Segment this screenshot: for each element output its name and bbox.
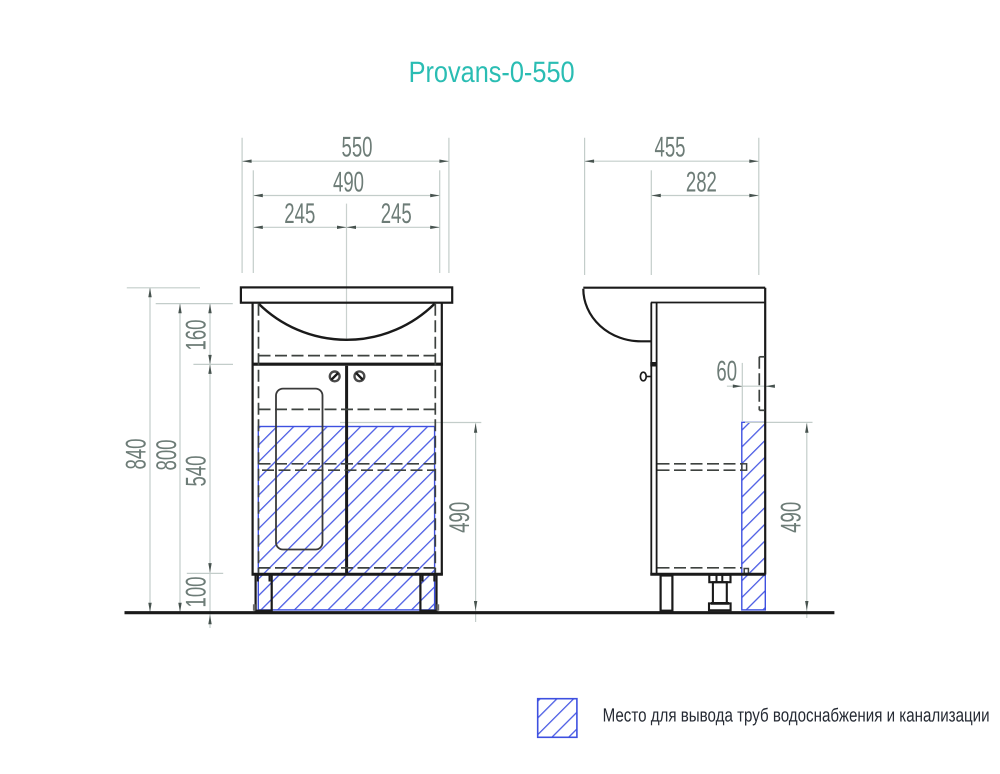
svg-text:245: 245	[284, 198, 315, 230]
svg-text:282: 282	[686, 167, 717, 199]
svg-text:800: 800	[151, 440, 183, 471]
svg-text:490: 490	[444, 502, 476, 533]
svg-text:160: 160	[181, 320, 213, 351]
svg-text:245: 245	[381, 198, 412, 230]
svg-text:100: 100	[181, 577, 213, 608]
svg-text:Место для вывода труб водоснаб: Место для вывода труб водоснабжения и ка…	[603, 706, 990, 727]
svg-text:490: 490	[333, 167, 364, 199]
svg-text:Provans-0-550: Provans-0-550	[409, 56, 575, 89]
svg-text:490: 490	[775, 502, 807, 533]
svg-text:550: 550	[342, 132, 373, 164]
svg-text:60: 60	[716, 355, 737, 387]
svg-text:455: 455	[655, 132, 686, 164]
svg-text:840: 840	[121, 439, 153, 470]
svg-text:540: 540	[181, 456, 213, 487]
